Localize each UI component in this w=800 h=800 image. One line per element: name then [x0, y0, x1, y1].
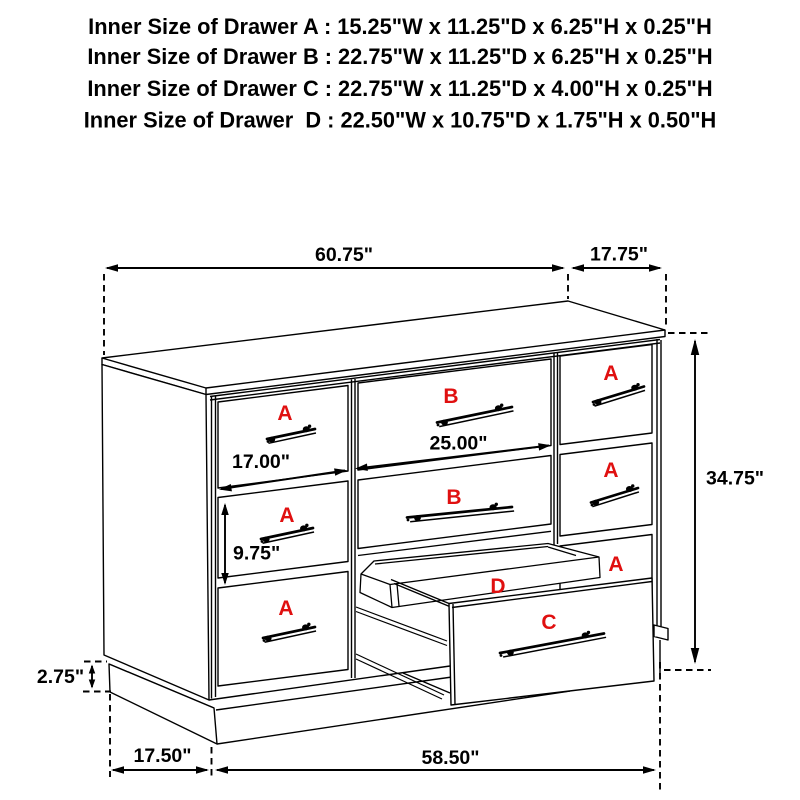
svg-text:60.75": 60.75": [315, 244, 373, 266]
svg-text:A: A: [278, 597, 293, 620]
svg-text:A: A: [603, 459, 618, 482]
svg-text:B: B: [443, 385, 458, 408]
svg-text:C: C: [541, 611, 556, 634]
svg-text:Inner Size of Drawer C : 22.75: Inner Size of Drawer C : 22.75"W x 11.25…: [87, 76, 712, 101]
svg-text:9.75": 9.75": [233, 543, 280, 565]
svg-text:17.50": 17.50": [133, 745, 191, 767]
svg-text:58.50": 58.50": [421, 747, 479, 769]
svg-text:A: A: [603, 362, 618, 385]
svg-text:34.75": 34.75": [706, 468, 764, 490]
svg-text:A: A: [279, 504, 294, 527]
svg-text:D: D: [490, 575, 505, 598]
svg-text:Inner Size of Drawer B : 22.75: Inner Size of Drawer B : 22.75"W x 11.25…: [87, 44, 712, 69]
svg-text:A: A: [608, 553, 623, 576]
svg-text:17.00": 17.00": [232, 451, 290, 473]
svg-text:Inner Size of Drawer D : 22.5: Inner Size of Drawer D : 22.50"W x 10.75…: [84, 107, 717, 132]
svg-text:B: B: [446, 486, 461, 509]
svg-text:17.75": 17.75": [590, 244, 648, 266]
svg-text:A: A: [277, 402, 292, 425]
svg-text:25.00": 25.00": [429, 433, 487, 455]
svg-text:Inner Size of Drawer A : 15.25: Inner Size of Drawer A : 15.25"W x 11.25…: [88, 14, 712, 39]
svg-text:2.75": 2.75": [37, 666, 84, 688]
